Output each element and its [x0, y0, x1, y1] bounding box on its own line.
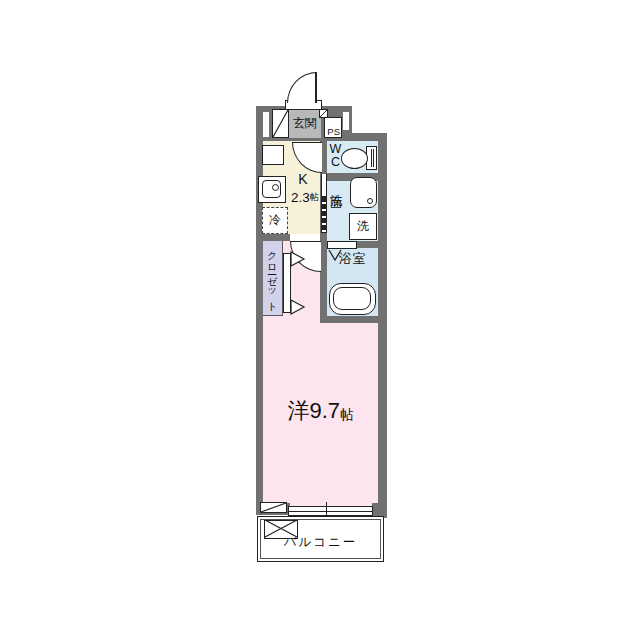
closet-door-arrow-top-icon: [290, 251, 306, 267]
wc-label: W C: [328, 142, 343, 170]
shoe-cabinet-icon: [272, 109, 289, 138]
refrigerator-icon: 冷: [262, 207, 288, 234]
window-mid-rail: [289, 511, 372, 512]
pipe-space-label: PS: [327, 127, 340, 137]
closet-label: クローゼット: [266, 244, 277, 316]
living-room-label: 洋9.7帖: [263, 399, 378, 422]
kitchen-label: K: [290, 172, 316, 187]
small-window-icon: [260, 502, 287, 513]
washer-label: 洗: [357, 220, 369, 233]
wall-slit-left: [263, 112, 269, 137]
toilet-tank-detail: [371, 149, 374, 167]
toilet-bowl-icon: [341, 148, 368, 169]
kitchen-size-unit: 帖: [310, 193, 319, 202]
kitchen-sink-icon: [258, 176, 286, 203]
entrance-door-swing-icon: [287, 72, 317, 103]
floor-plan: 玄関 PS 冷 洗: [0, 0, 640, 640]
bath-bottom-wall: [320, 316, 387, 323]
kitchen-bottom-wall: [256, 234, 290, 241]
bathroom-label: 浴室: [327, 252, 378, 266]
bath-top-wall: [356, 241, 378, 248]
kitchen-size-value: 2.3: [291, 191, 310, 205]
wall-slit-right: [343, 112, 349, 130]
kitchen-counter-icon: [262, 145, 284, 165]
living-room-size-unit: 帖: [340, 408, 354, 422]
kitchen-door-opening: [290, 234, 320, 241]
kitchen-label-text: K: [298, 172, 307, 187]
entrance-tile: 玄関: [289, 109, 321, 138]
living-room-label-text: 洋: [287, 399, 309, 422]
wc-label-line2: C: [331, 156, 340, 169]
kitchen-size-label: 2.3帖: [284, 191, 326, 205]
washbasin-icon: [350, 177, 377, 208]
right-wall: [378, 133, 387, 518]
living-room-size-value: 9.7: [309, 399, 340, 422]
balcony-sliding-window-icon: [288, 506, 373, 516]
refrigerator-label: 冷: [269, 214, 281, 227]
washroom-label: 洗面: [329, 184, 342, 188]
bath-door-sill: [327, 241, 357, 249]
entrance-label: 玄関: [293, 117, 317, 130]
washbasin-drain: [367, 198, 373, 204]
faucet-icon: [272, 184, 279, 191]
washing-machine-icon: 洗: [349, 213, 377, 240]
balcony-area: バルコニー: [257, 516, 384, 562]
closet-door-arrow-bottom-icon: [290, 299, 306, 315]
bathtub-inner: [333, 287, 371, 310]
balcony-label: バルコニー: [258, 536, 383, 549]
pipe-space-box: PS: [324, 117, 342, 138]
bathtub-icon: [329, 283, 376, 315]
